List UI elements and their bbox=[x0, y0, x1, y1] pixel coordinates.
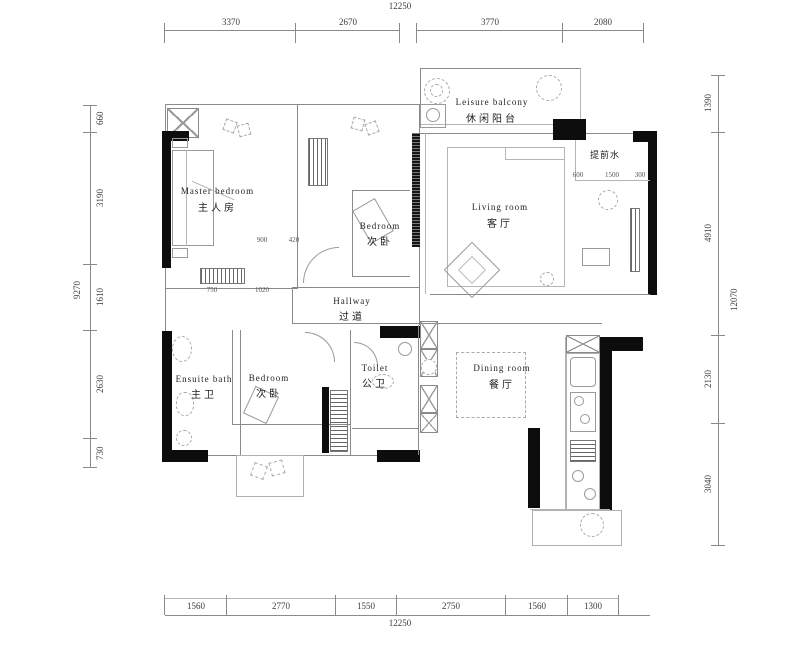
wall-bedroom-lower-right bbox=[350, 330, 351, 455]
dim-minor-900: 900 bbox=[248, 236, 276, 244]
dim-line-left bbox=[90, 105, 91, 468]
dim-bottom-seg-2: 2770 bbox=[251, 601, 311, 612]
wall-black-balcony-right bbox=[553, 119, 586, 140]
dim-bottom-seg-3: 1550 bbox=[336, 601, 396, 612]
dim-top-total: 12250 bbox=[350, 1, 450, 12]
dim-line-bottom-main bbox=[165, 615, 650, 616]
living-step-line bbox=[505, 147, 506, 159]
sink-icon bbox=[398, 342, 412, 356]
chair-icon bbox=[351, 117, 366, 132]
dim-line-top-2 bbox=[417, 30, 644, 31]
label-toilet-zh: 公卫 bbox=[350, 375, 400, 390]
wall-top-upper-unit bbox=[165, 104, 420, 105]
label-toilet-en: Toilet bbox=[350, 363, 400, 373]
wall-living-top bbox=[420, 133, 650, 134]
exhaust-fan-icon bbox=[421, 359, 437, 375]
living-step-line bbox=[505, 159, 565, 160]
wall-black-kitchen-top bbox=[600, 337, 643, 351]
floor-plan-canvas: 12250 3370 2670 3770 2080 1560 2770 1550… bbox=[0, 0, 800, 648]
dim-right-seg-2: 4910 bbox=[702, 205, 715, 261]
label-bedroom-upper-zh: 次卧 bbox=[345, 233, 415, 248]
wall-black-kitchen-right bbox=[600, 351, 612, 510]
label-bedroom-lower-en: Bedroom bbox=[233, 373, 305, 383]
wall-black-toilet-top bbox=[380, 326, 420, 338]
closet-icon bbox=[200, 268, 245, 284]
stove-burner-icon bbox=[584, 488, 596, 500]
chair-icon bbox=[222, 118, 237, 133]
dim-tick bbox=[226, 595, 227, 615]
chair-icon bbox=[598, 190, 618, 210]
drain-rack-icon bbox=[570, 440, 596, 462]
ladder-icon bbox=[330, 390, 348, 452]
sink-basin-icon bbox=[574, 396, 584, 406]
dim-right-total: 12070 bbox=[728, 272, 741, 328]
dim-tick bbox=[711, 132, 725, 133]
wall-toilet-bottom bbox=[352, 428, 418, 429]
label-master-bedroom-zh: 主人房 bbox=[165, 199, 270, 214]
door-arc-icon bbox=[305, 332, 335, 362]
wall-black-right-outer bbox=[648, 140, 657, 295]
lamp-icon bbox=[540, 272, 554, 286]
label-bedroom-upper-en: Bedroom bbox=[345, 221, 415, 231]
stove-burner-icon bbox=[572, 470, 584, 482]
dim-tick bbox=[164, 23, 165, 43]
fridge-icon bbox=[570, 357, 596, 387]
dim-left-seg-3: 1610 bbox=[94, 269, 107, 325]
window-x-icon bbox=[420, 413, 438, 433]
plant-inner-icon bbox=[430, 84, 443, 97]
label-living-room-zh: 客厅 bbox=[445, 215, 555, 230]
wall-living-bottom bbox=[430, 294, 650, 295]
dim-bottom-seg-1: 1560 bbox=[166, 601, 226, 612]
label-ensuite-bath-en: Ensuite bath bbox=[164, 374, 244, 384]
wall-balcony-top bbox=[420, 68, 580, 69]
dim-tick bbox=[711, 545, 725, 546]
window-x-icon bbox=[420, 321, 438, 349]
label-leisure-balcony-en: Leisure balcony bbox=[432, 97, 552, 107]
dim-minor-300: 300 bbox=[630, 171, 650, 179]
dim-tick bbox=[505, 595, 506, 615]
wall-bedroom-upper-bottom bbox=[352, 276, 410, 277]
dim-top-seg-2: 2670 bbox=[318, 17, 378, 28]
label-ensuite-bath-zh: 主卫 bbox=[164, 386, 244, 401]
dim-bottom-total: 12250 bbox=[350, 618, 450, 629]
label-leisure-balcony-zh: 休闲阳台 bbox=[432, 110, 552, 125]
wall-black-kitchen-left bbox=[528, 428, 540, 508]
dim-tick bbox=[83, 330, 97, 331]
wall-master-right bbox=[297, 104, 298, 289]
dim-right-seg-4: 3040 bbox=[702, 456, 715, 512]
dim-bottom-seg-5: 1560 bbox=[507, 601, 567, 612]
door-arc-icon bbox=[303, 247, 339, 283]
dim-minor-750: 750 bbox=[198, 286, 226, 294]
bed-pillow-line bbox=[186, 150, 187, 246]
dim-right-seg-3: 2130 bbox=[702, 351, 715, 407]
dim-minor-1020: 1020 bbox=[246, 286, 278, 294]
dim-left-total: 9270 bbox=[71, 262, 84, 318]
dim-tick bbox=[164, 595, 165, 615]
wall-master-bottom bbox=[165, 288, 298, 289]
dim-tick bbox=[396, 595, 397, 615]
nightstand-icon bbox=[172, 138, 188, 148]
balcony-kitchen bbox=[532, 510, 622, 546]
sink-basin-icon bbox=[580, 414, 590, 424]
dim-line-top-1 bbox=[165, 30, 400, 31]
label-hallway-zh: 过道 bbox=[312, 308, 392, 323]
dim-minor-420: 420 bbox=[280, 236, 308, 244]
dim-top-seg-1: 3370 bbox=[201, 17, 261, 28]
wall-black-bottom-right bbox=[377, 450, 420, 462]
balcony-lower bbox=[236, 455, 304, 497]
dim-line-bottom-upper bbox=[165, 598, 619, 599]
dim-bottom-seg-6: 1300 bbox=[563, 601, 623, 612]
desk-icon bbox=[582, 248, 610, 266]
window-x-icon bbox=[420, 385, 438, 413]
dim-tick bbox=[295, 23, 296, 43]
wall-living-left bbox=[425, 133, 426, 294]
window-x-icon bbox=[566, 335, 600, 353]
dim-line-right bbox=[718, 75, 719, 545]
wall-balcony-right bbox=[580, 68, 581, 125]
wall-hallway-left bbox=[292, 287, 293, 324]
wall-black-shaft bbox=[322, 387, 329, 453]
chair-icon bbox=[364, 120, 379, 135]
dim-tick bbox=[711, 423, 725, 424]
wardrobe-icon bbox=[308, 138, 328, 186]
basin-icon bbox=[172, 336, 192, 362]
dim-tick bbox=[562, 23, 563, 43]
dim-tick bbox=[83, 264, 97, 265]
dim-left-seg-2: 3190 bbox=[94, 170, 107, 226]
label-living-room-en: Living room bbox=[445, 202, 555, 212]
label-utility-zh: 提前水 bbox=[580, 148, 630, 161]
bed-icon bbox=[172, 150, 214, 246]
dim-tick bbox=[643, 23, 644, 43]
exhaust-fan-icon bbox=[580, 513, 604, 537]
label-hallway-en: Hallway bbox=[312, 296, 392, 306]
label-dining-room-en: Dining room bbox=[462, 363, 542, 373]
nightstand-icon bbox=[172, 248, 188, 258]
dim-left-seg-1: 660 bbox=[94, 90, 107, 146]
dim-minor-1500: 1500 bbox=[598, 171, 626, 179]
dim-top-seg-3: 3770 bbox=[460, 17, 520, 28]
wall-black-bottom-left bbox=[162, 450, 208, 462]
dim-left-seg-5: 730 bbox=[94, 425, 107, 481]
label-bedroom-lower-zh: 次卧 bbox=[233, 385, 305, 400]
dim-minor-600: 600 bbox=[566, 171, 590, 179]
label-dining-room-zh: 餐厅 bbox=[462, 376, 542, 391]
dim-right-seg-1: 1390 bbox=[702, 75, 715, 131]
dim-bottom-seg-4: 2750 bbox=[421, 601, 481, 612]
wall-utility-bottom bbox=[575, 180, 650, 181]
dim-left-seg-4: 2630 bbox=[94, 356, 107, 412]
wall-lower-unit-right bbox=[418, 325, 419, 455]
wall-hallway-top bbox=[292, 287, 420, 288]
dim-top-seg-4: 2080 bbox=[573, 17, 633, 28]
label-master-bedroom-en: Master bedroom bbox=[165, 186, 270, 196]
wall-hallway-dining-bottom bbox=[292, 323, 602, 324]
dim-tick bbox=[416, 23, 417, 43]
dim-tick bbox=[399, 23, 400, 43]
wall-bedroom-upper-top bbox=[352, 190, 410, 191]
cabinet-icon bbox=[630, 208, 640, 272]
chair-icon bbox=[237, 123, 252, 138]
shower-drain-icon bbox=[176, 430, 192, 446]
dim-tick bbox=[711, 335, 725, 336]
